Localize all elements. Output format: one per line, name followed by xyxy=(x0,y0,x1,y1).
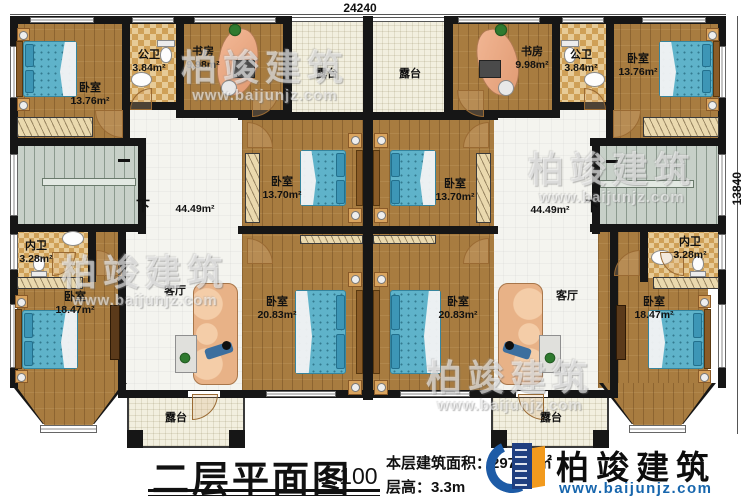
pillow xyxy=(25,70,34,93)
nightstand xyxy=(348,208,362,223)
pillow xyxy=(693,313,702,338)
wall xyxy=(10,138,146,146)
pillow xyxy=(336,295,345,330)
wall xyxy=(138,138,146,234)
pillow xyxy=(25,44,34,67)
window xyxy=(718,234,726,270)
table-plant xyxy=(544,352,556,364)
sofa xyxy=(193,283,238,385)
wall xyxy=(490,390,618,398)
bed-headboard xyxy=(15,309,22,369)
person-head xyxy=(222,341,231,350)
pillow xyxy=(336,153,345,177)
person-head xyxy=(505,341,514,350)
room-label-bath-public-left: 公卫3.84m² xyxy=(122,49,176,74)
party-wall xyxy=(363,16,373,400)
stair-direction-arrow xyxy=(606,160,618,163)
closet xyxy=(17,117,93,137)
plant xyxy=(228,23,242,37)
stair-direction-arrow xyxy=(118,159,130,162)
wall xyxy=(122,16,130,146)
wall xyxy=(590,138,726,146)
room-label-hall-left: 客厅 xyxy=(153,285,197,298)
plant xyxy=(494,23,508,37)
nightstand xyxy=(17,98,30,111)
hall-left-area-label: 44.49m² xyxy=(165,203,225,216)
pillow xyxy=(391,153,400,177)
toilet xyxy=(690,271,706,277)
window xyxy=(718,304,726,368)
logo-icon xyxy=(486,437,556,499)
wall xyxy=(238,112,498,120)
wall xyxy=(283,16,292,120)
pillow xyxy=(336,334,345,369)
toilet xyxy=(561,40,579,47)
nightstand xyxy=(698,370,711,383)
wall xyxy=(592,138,600,234)
room-label-bedroom-cl: 卧室13.70m² xyxy=(252,176,312,201)
bay-window-left-glass xyxy=(40,425,97,433)
bed-headboard xyxy=(16,41,23,97)
dimension-line-right xyxy=(737,16,738,434)
bed-headboard xyxy=(704,309,711,369)
room-label-study-right: 书房9.98m² xyxy=(502,46,562,71)
room-label-terrace-bottom-right: 露台 xyxy=(529,412,573,425)
bed-headboard xyxy=(356,150,363,206)
hall-right-area-label: 44.49m² xyxy=(520,204,580,217)
pillow xyxy=(693,341,702,366)
bed-headboard xyxy=(373,290,380,374)
stair-handrail xyxy=(42,178,136,186)
window xyxy=(400,391,470,397)
bed-headboard xyxy=(373,150,380,206)
window xyxy=(132,17,174,23)
nightstand xyxy=(17,28,30,41)
nightstand xyxy=(698,295,711,308)
room-label-bedroom-tl: 卧室13.76m² xyxy=(60,82,120,107)
bay-window-right-floor xyxy=(603,383,712,425)
nightstand xyxy=(15,370,28,383)
room-label-bedroom-tr: 卧室13.76m² xyxy=(608,53,668,78)
stair-down-label-left: 下 xyxy=(133,198,153,214)
room-label-terrace-top-left: 露台 xyxy=(305,68,349,81)
plan-scale: 1:100 xyxy=(320,463,378,490)
title-underline xyxy=(148,489,380,492)
floor-height-text: 层高：3.3m xyxy=(386,476,465,497)
pillow xyxy=(391,295,400,330)
nightstand xyxy=(374,272,388,287)
room-label-bath-inner-left: 内卫3.28m² xyxy=(12,240,60,265)
room-label-bedroom-cr: 卧室13.70m² xyxy=(425,178,485,203)
pillow xyxy=(702,70,711,93)
closet xyxy=(17,277,83,289)
room-label-hall-right: 客厅 xyxy=(545,290,589,303)
logo-website: www.baijunjz.com xyxy=(559,480,712,497)
dimension-right-value: 13840 xyxy=(730,172,744,205)
wall xyxy=(238,226,498,234)
nightstand xyxy=(374,208,388,223)
pillow xyxy=(24,341,33,366)
room-label-bath-public-right: 公卫3.84m² xyxy=(554,49,608,74)
stair-handrail xyxy=(600,180,694,188)
pillow xyxy=(336,180,345,204)
room-label-study-left: 书房9.98m² xyxy=(173,46,233,71)
bay-window-left-floor xyxy=(14,383,123,425)
wall xyxy=(88,224,96,282)
closet xyxy=(653,277,719,289)
wall xyxy=(118,390,246,398)
window xyxy=(718,154,726,216)
room-label-bath-inner-right: 内卫3.28m² xyxy=(666,236,714,261)
wall xyxy=(444,16,453,120)
room-label-terrace-top-right: 露台 xyxy=(388,68,432,81)
closet xyxy=(643,117,719,137)
pillow xyxy=(391,180,400,204)
sink xyxy=(62,231,84,246)
dresser xyxy=(110,305,120,360)
window xyxy=(642,17,706,23)
terrace-post xyxy=(229,430,245,448)
nightstand xyxy=(348,133,362,148)
table-plant xyxy=(179,352,191,364)
computer-monitor xyxy=(479,60,501,78)
nightstand xyxy=(348,380,362,395)
wall xyxy=(640,224,648,282)
pillow xyxy=(24,313,33,338)
window xyxy=(10,154,18,216)
title-underline xyxy=(148,495,380,496)
nightstand xyxy=(348,272,362,287)
desk-chair xyxy=(221,80,237,96)
logo-building-orange xyxy=(532,446,545,488)
bed-headboard xyxy=(356,290,363,374)
floor-plan-page: 卧室13.76m² 公卫3.84m² 书房9.98m² 露台 露台 书房9.98… xyxy=(0,0,750,501)
nightstand xyxy=(374,380,388,395)
pillow xyxy=(391,334,400,369)
closet xyxy=(373,235,436,244)
window xyxy=(266,391,336,397)
room-label-bedroom-bl: 卧室18.47m² xyxy=(45,291,105,316)
nightstand xyxy=(15,295,28,308)
logo-building-blue xyxy=(512,443,532,489)
stair-down-label-right: 下 xyxy=(582,198,602,214)
closet xyxy=(300,235,363,244)
nightstand xyxy=(374,133,388,148)
window xyxy=(30,17,94,23)
dimension-top-value: 24240 xyxy=(330,1,390,15)
computer-monitor xyxy=(233,60,255,78)
room-label-bedroom-bcr: 卧室20.83m² xyxy=(428,296,488,321)
room-label-terrace-bottom-left: 露台 xyxy=(154,412,198,425)
pillow xyxy=(702,44,711,67)
terrace-post xyxy=(127,430,143,448)
bay-window-right-glass xyxy=(629,425,686,433)
sofa xyxy=(498,283,543,385)
room-label-bedroom-bcl: 卧室20.83m² xyxy=(247,296,307,321)
bed-headboard xyxy=(713,41,720,97)
room-label-bedroom-br: 卧室18.47m² xyxy=(624,296,684,321)
window xyxy=(562,17,604,23)
nightstand xyxy=(706,98,719,111)
nightstand xyxy=(706,28,719,41)
toilet xyxy=(31,271,47,277)
desk-chair xyxy=(498,80,514,96)
